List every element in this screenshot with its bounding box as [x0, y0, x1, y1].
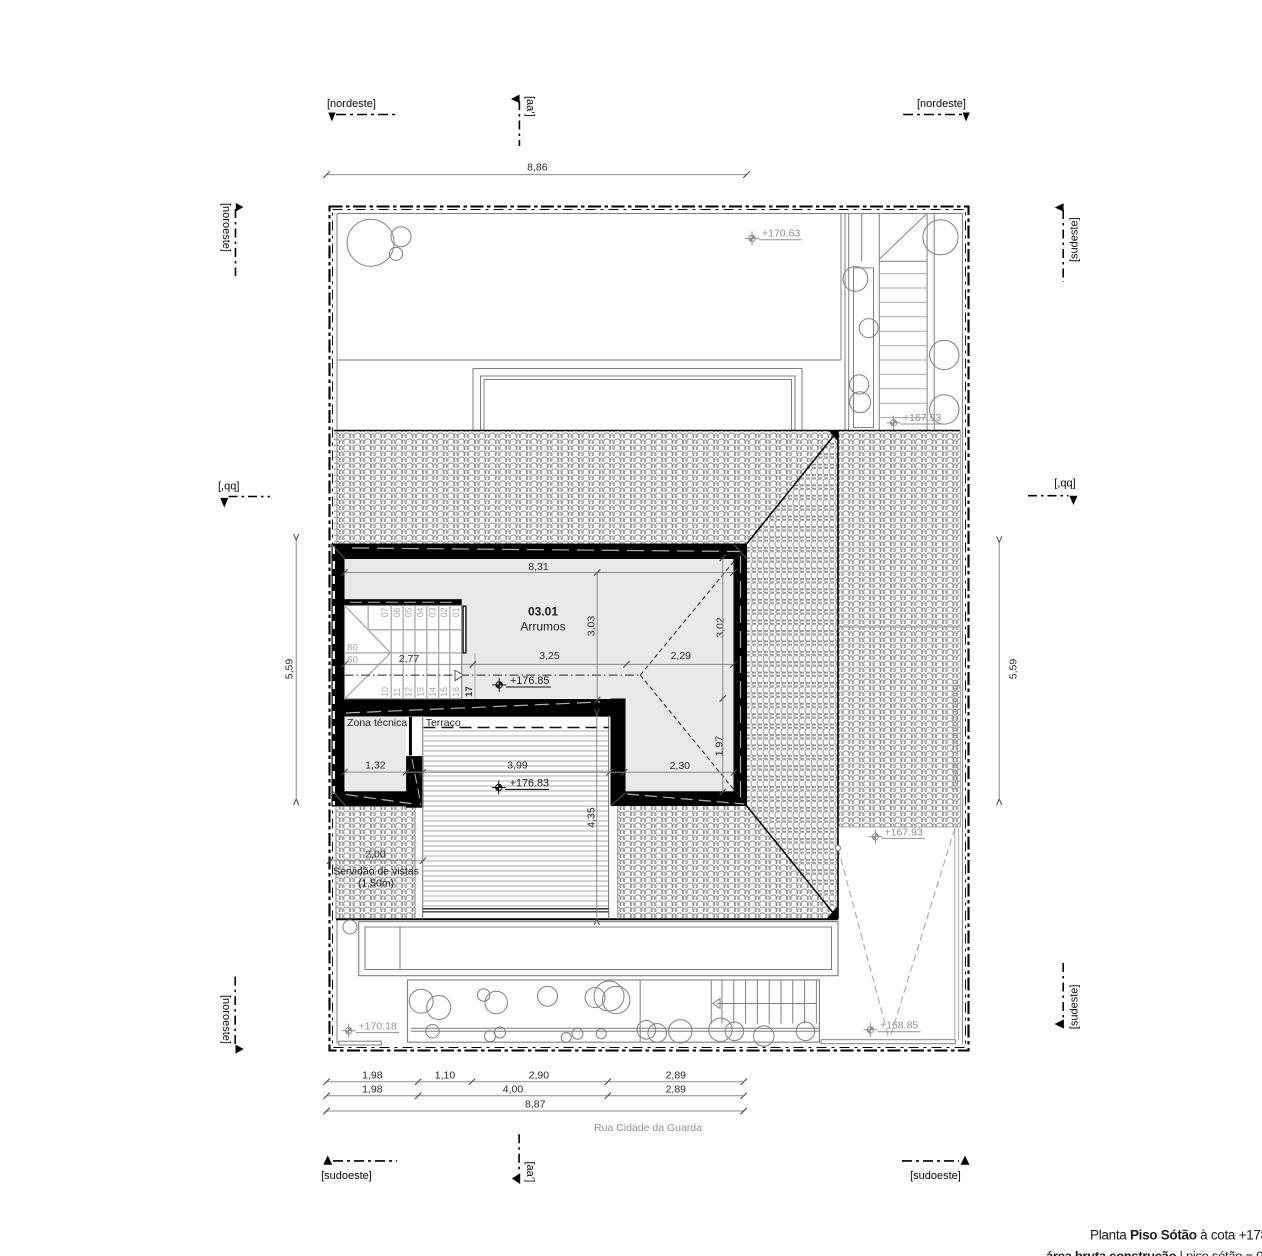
svg-text:15: 15	[439, 687, 449, 697]
svg-text:[sudoeste]: [sudoeste]	[321, 1170, 372, 1182]
svg-text:03: 03	[427, 607, 437, 617]
svg-text:13: 13	[416, 687, 426, 697]
svg-text:Planta Piso Sótão à cota +178.: Planta Piso Sótão à cota +178.85	[1090, 1228, 1262, 1243]
svg-text:60: 60	[347, 654, 358, 665]
svg-text:5,59: 5,59	[1007, 659, 1019, 680]
svg-text:Rua Cidade da Guarda: Rua Cidade da Guarda	[594, 1122, 702, 1134]
svg-text:(1,50m): (1,50m)	[358, 878, 394, 890]
svg-text:05: 05	[404, 607, 414, 617]
svg-text:5,59: 5,59	[284, 659, 296, 680]
svg-text:Zona técnica: Zona técnica	[347, 717, 407, 729]
svg-text:1,98: 1,98	[362, 1070, 383, 1082]
svg-text:+167.93: +167.93	[885, 826, 923, 838]
svg-text:4,35: 4,35	[586, 807, 598, 828]
svg-text:[aa’]: [aa’]	[524, 1162, 536, 1183]
svg-text:4,00: 4,00	[503, 1084, 524, 1096]
svg-text:[noroeste]: [noroeste]	[220, 995, 232, 1044]
svg-text:+170.18: +170.18	[359, 1020, 397, 1032]
svg-text:[sudeste]: [sudeste]	[1069, 985, 1081, 1030]
svg-text:+176.85: +176.85	[510, 675, 549, 687]
svg-text:16: 16	[451, 687, 461, 697]
svg-text:+168.85: +168.85	[880, 1020, 918, 1032]
svg-text:1,97: 1,97	[714, 736, 726, 757]
svg-text:02: 02	[439, 607, 449, 617]
svg-text:1,98: 1,98	[362, 1084, 383, 1096]
svg-text:[nordeste]: [nordeste]	[327, 98, 376, 110]
svg-text:[sudoeste]: [sudoeste]	[910, 1170, 961, 1182]
svg-text:Parede / Cortina Corta-fogo: Parede / Cortina Corta-fogo	[950, 679, 960, 790]
svg-text:06: 06	[392, 607, 402, 617]
svg-text:Servidão de vistas: Servidão de vistas	[333, 866, 419, 878]
svg-text:2,77: 2,77	[399, 653, 420, 665]
svg-text:11: 11	[392, 688, 402, 697]
svg-text:2,89: 2,89	[666, 1070, 687, 1082]
svg-text:3,99: 3,99	[507, 760, 528, 772]
svg-text:80: 80	[347, 643, 358, 654]
svg-text:8,86: 8,86	[527, 162, 548, 174]
svg-text:+176.83: +176.83	[510, 777, 549, 789]
svg-text:Terraço: Terraço	[426, 717, 461, 729]
svg-text:[aa’]: [aa’]	[524, 96, 536, 117]
svg-text:2,89: 2,89	[666, 1084, 687, 1096]
svg-text:04: 04	[416, 607, 426, 617]
svg-text:8,31: 8,31	[528, 561, 549, 573]
svg-text:[,qq]: [,qq]	[218, 481, 239, 493]
svg-text:[sudeste]: [sudeste]	[1069, 217, 1081, 262]
svg-text:03.01: 03.01	[528, 605, 558, 619]
svg-text:3,03: 3,03	[586, 616, 598, 637]
svg-text:2,30: 2,30	[670, 760, 691, 772]
svg-text:17: 17	[464, 686, 475, 697]
svg-text:01: 01	[451, 607, 461, 617]
svg-text:2,00: 2,00	[365, 849, 386, 861]
svg-text:07: 07	[380, 607, 390, 617]
svg-text:3,02: 3,02	[714, 617, 726, 638]
svg-text:10: 10	[380, 687, 390, 697]
svg-text:[noroeste]: [noroeste]	[220, 203, 232, 252]
svg-text:14: 14	[427, 687, 437, 697]
svg-text:12: 12	[404, 687, 414, 697]
svg-text:Arrumos: Arrumos	[520, 620, 565, 634]
svg-text:[,qq]: [,qq]	[1054, 478, 1075, 490]
svg-text:2,90: 2,90	[529, 1070, 550, 1082]
svg-text:3,25: 3,25	[539, 650, 560, 662]
svg-text:1,32: 1,32	[365, 759, 386, 771]
svg-text:área bruta construção | piso s: área bruta construção | piso sótão = 03,…	[1046, 1249, 1262, 1256]
svg-text:8,87: 8,87	[525, 1099, 546, 1111]
svg-text:1,10: 1,10	[435, 1070, 456, 1082]
svg-text:+167.93: +167.93	[903, 412, 941, 424]
svg-text:[nordeste]: [nordeste]	[917, 98, 966, 110]
svg-text:+170.63: +170.63	[762, 228, 800, 240]
svg-text:2,29: 2,29	[671, 650, 692, 662]
